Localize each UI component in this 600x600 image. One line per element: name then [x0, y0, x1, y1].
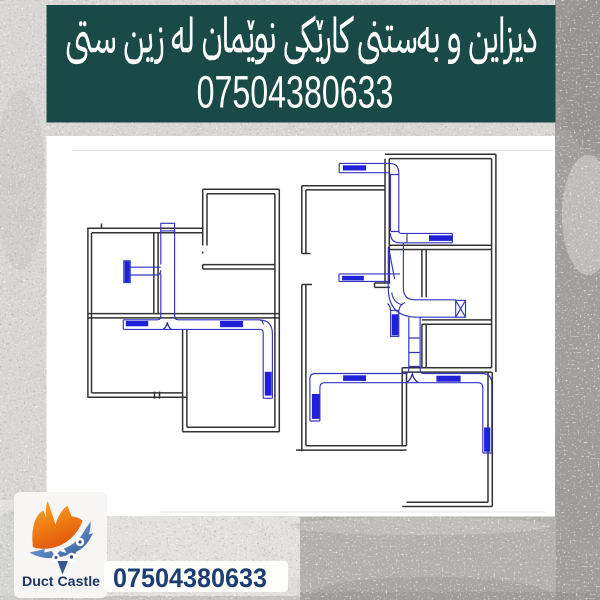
- svg-text:07504380633: 07504380633: [197, 68, 394, 117]
- svg-text:07504380633: 07504380633: [113, 564, 267, 593]
- svg-text:Duct Castle: Duct Castle: [22, 574, 100, 590]
